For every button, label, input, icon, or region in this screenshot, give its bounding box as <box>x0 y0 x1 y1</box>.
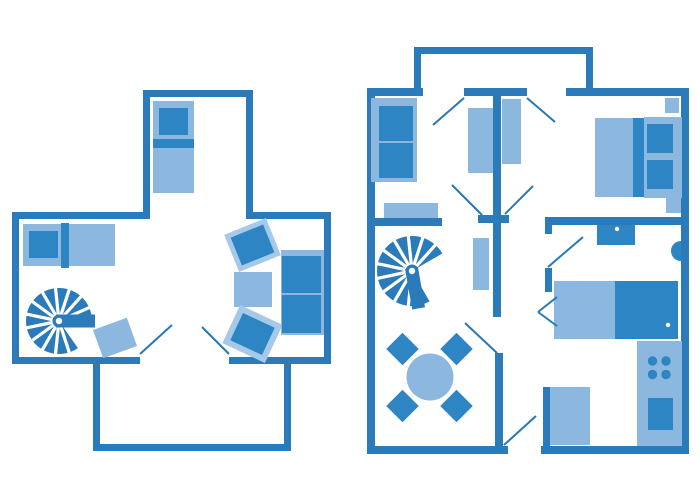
wall-wardrobe-stub <box>543 387 550 446</box>
bath-sink-dot <box>615 227 619 231</box>
door-swing-line <box>527 98 555 122</box>
sofa-cushion-bottom <box>282 295 321 333</box>
wall-main-bottom-left <box>12 357 140 364</box>
single-bed-band <box>153 139 194 148</box>
floor-plan-page <box>0 0 700 500</box>
door-swing-line <box>140 325 172 354</box>
wall-bottom-a <box>367 446 508 454</box>
stove-burner <box>661 370 670 379</box>
wall-main-left <box>12 212 19 364</box>
shelf <box>473 238 489 290</box>
closet-right <box>502 99 521 164</box>
daybed-band <box>61 223 69 268</box>
double-bed-mattress <box>595 118 633 197</box>
floor-plan-canvas <box>0 0 700 500</box>
stove-burner <box>648 356 657 365</box>
double-bed-pillow-bottom <box>647 160 673 189</box>
wall-main-bottom-right <box>229 357 331 364</box>
bathtub-drain <box>666 323 670 327</box>
wall-kitchen-vertical <box>495 353 503 446</box>
bench <box>384 203 438 218</box>
rug <box>93 318 137 359</box>
wall-bedroom-bottom <box>545 217 682 225</box>
double-bed-band <box>633 118 644 197</box>
door-swing-line <box>505 186 533 214</box>
wall-porch-top <box>414 47 593 54</box>
door-swing-line <box>452 185 482 215</box>
sofa2-cushion-bottom <box>379 143 413 178</box>
left-unit-plan <box>12 90 331 451</box>
coffee-table <box>234 272 272 307</box>
wall-extension-top <box>143 90 253 97</box>
wall-top-b <box>464 88 527 96</box>
wall-right <box>681 88 689 454</box>
wall-main-top-left <box>12 212 150 219</box>
wall-balcony-right <box>284 357 291 451</box>
wall-balcony-bottom <box>93 444 291 451</box>
door-swing-line <box>548 237 583 267</box>
wall-bottom-b <box>541 446 689 454</box>
wall-bath-stub <box>545 268 552 292</box>
nightstand-bottom <box>666 198 681 213</box>
door-swing-line <box>433 98 464 125</box>
stair-hub-dot <box>56 318 62 324</box>
wall-extension-left <box>143 90 150 218</box>
bathtub-basin <box>615 281 678 339</box>
spiral-staircase <box>26 287 95 355</box>
wall-main-top-right <box>246 212 330 219</box>
wall-top-a <box>367 88 423 96</box>
stove-burner <box>661 356 670 365</box>
stove-burner <box>648 370 657 379</box>
closet-left <box>468 108 493 173</box>
wall-extension-right <box>246 90 253 218</box>
wardrobe <box>550 387 590 445</box>
wall-top-c <box>566 88 689 96</box>
wall-main-right <box>324 212 331 364</box>
kitchen-sink <box>648 398 673 430</box>
door-swing-line <box>504 416 536 445</box>
single-bed-pillow <box>159 108 188 135</box>
wall-bath-stub-top <box>545 225 552 234</box>
wall-hall-vertical <box>493 96 501 317</box>
stair-hub-dot <box>409 268 415 274</box>
wall-room1-bottom <box>367 218 442 226</box>
dining-table <box>407 354 454 401</box>
daybed-pillow <box>29 231 58 258</box>
wall-balcony-left <box>93 357 100 451</box>
kitchen-counter <box>637 341 682 446</box>
bathtub-deck <box>554 281 615 339</box>
toilet <box>671 241 681 261</box>
double-bed-pillow-top <box>647 124 673 153</box>
right-unit-plan <box>367 47 689 454</box>
sofa-cushion-top <box>282 256 321 293</box>
nightstand-top <box>665 98 679 113</box>
spiral-staircase <box>377 235 449 309</box>
dining-chair <box>386 390 419 423</box>
wall-hall-stub <box>478 215 509 223</box>
sofa2-cushion-top <box>379 106 413 141</box>
